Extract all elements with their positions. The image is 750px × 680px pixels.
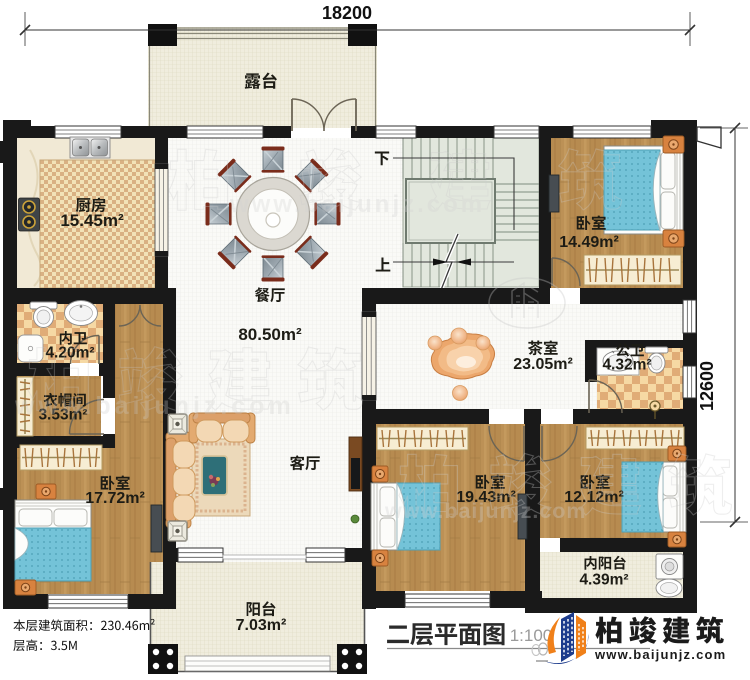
svg-text:4.39m²: 4.39m² xyxy=(579,572,628,589)
svg-text:www.baijunjz.com: www.baijunjz.com xyxy=(14,392,295,420)
svg-text:15.45m²: 15.45m² xyxy=(60,211,124,230)
svg-text:14.49m²: 14.49m² xyxy=(559,234,619,251)
svg-text:1:100: 1:100 xyxy=(510,626,553,645)
svg-text:www.baijunjz.com: www.baijunjz.com xyxy=(229,191,485,218)
svg-text:80.50m²: 80.50m² xyxy=(238,325,302,344)
svg-text:23.05m²: 23.05m² xyxy=(513,356,573,373)
svg-text:12600: 12600 xyxy=(697,361,717,411)
svg-text:17.72m²: 17.72m² xyxy=(85,490,145,507)
svg-text:www.baijunjz.com: www.baijunjz.com xyxy=(594,647,726,662)
svg-text:7.03m²: 7.03m² xyxy=(236,617,287,634)
svg-text:18200: 18200 xyxy=(322,3,372,23)
svg-text:www.baijunjz.com: www.baijunjz.com xyxy=(384,499,587,523)
svg-text:4.32m²: 4.32m² xyxy=(602,357,651,374)
